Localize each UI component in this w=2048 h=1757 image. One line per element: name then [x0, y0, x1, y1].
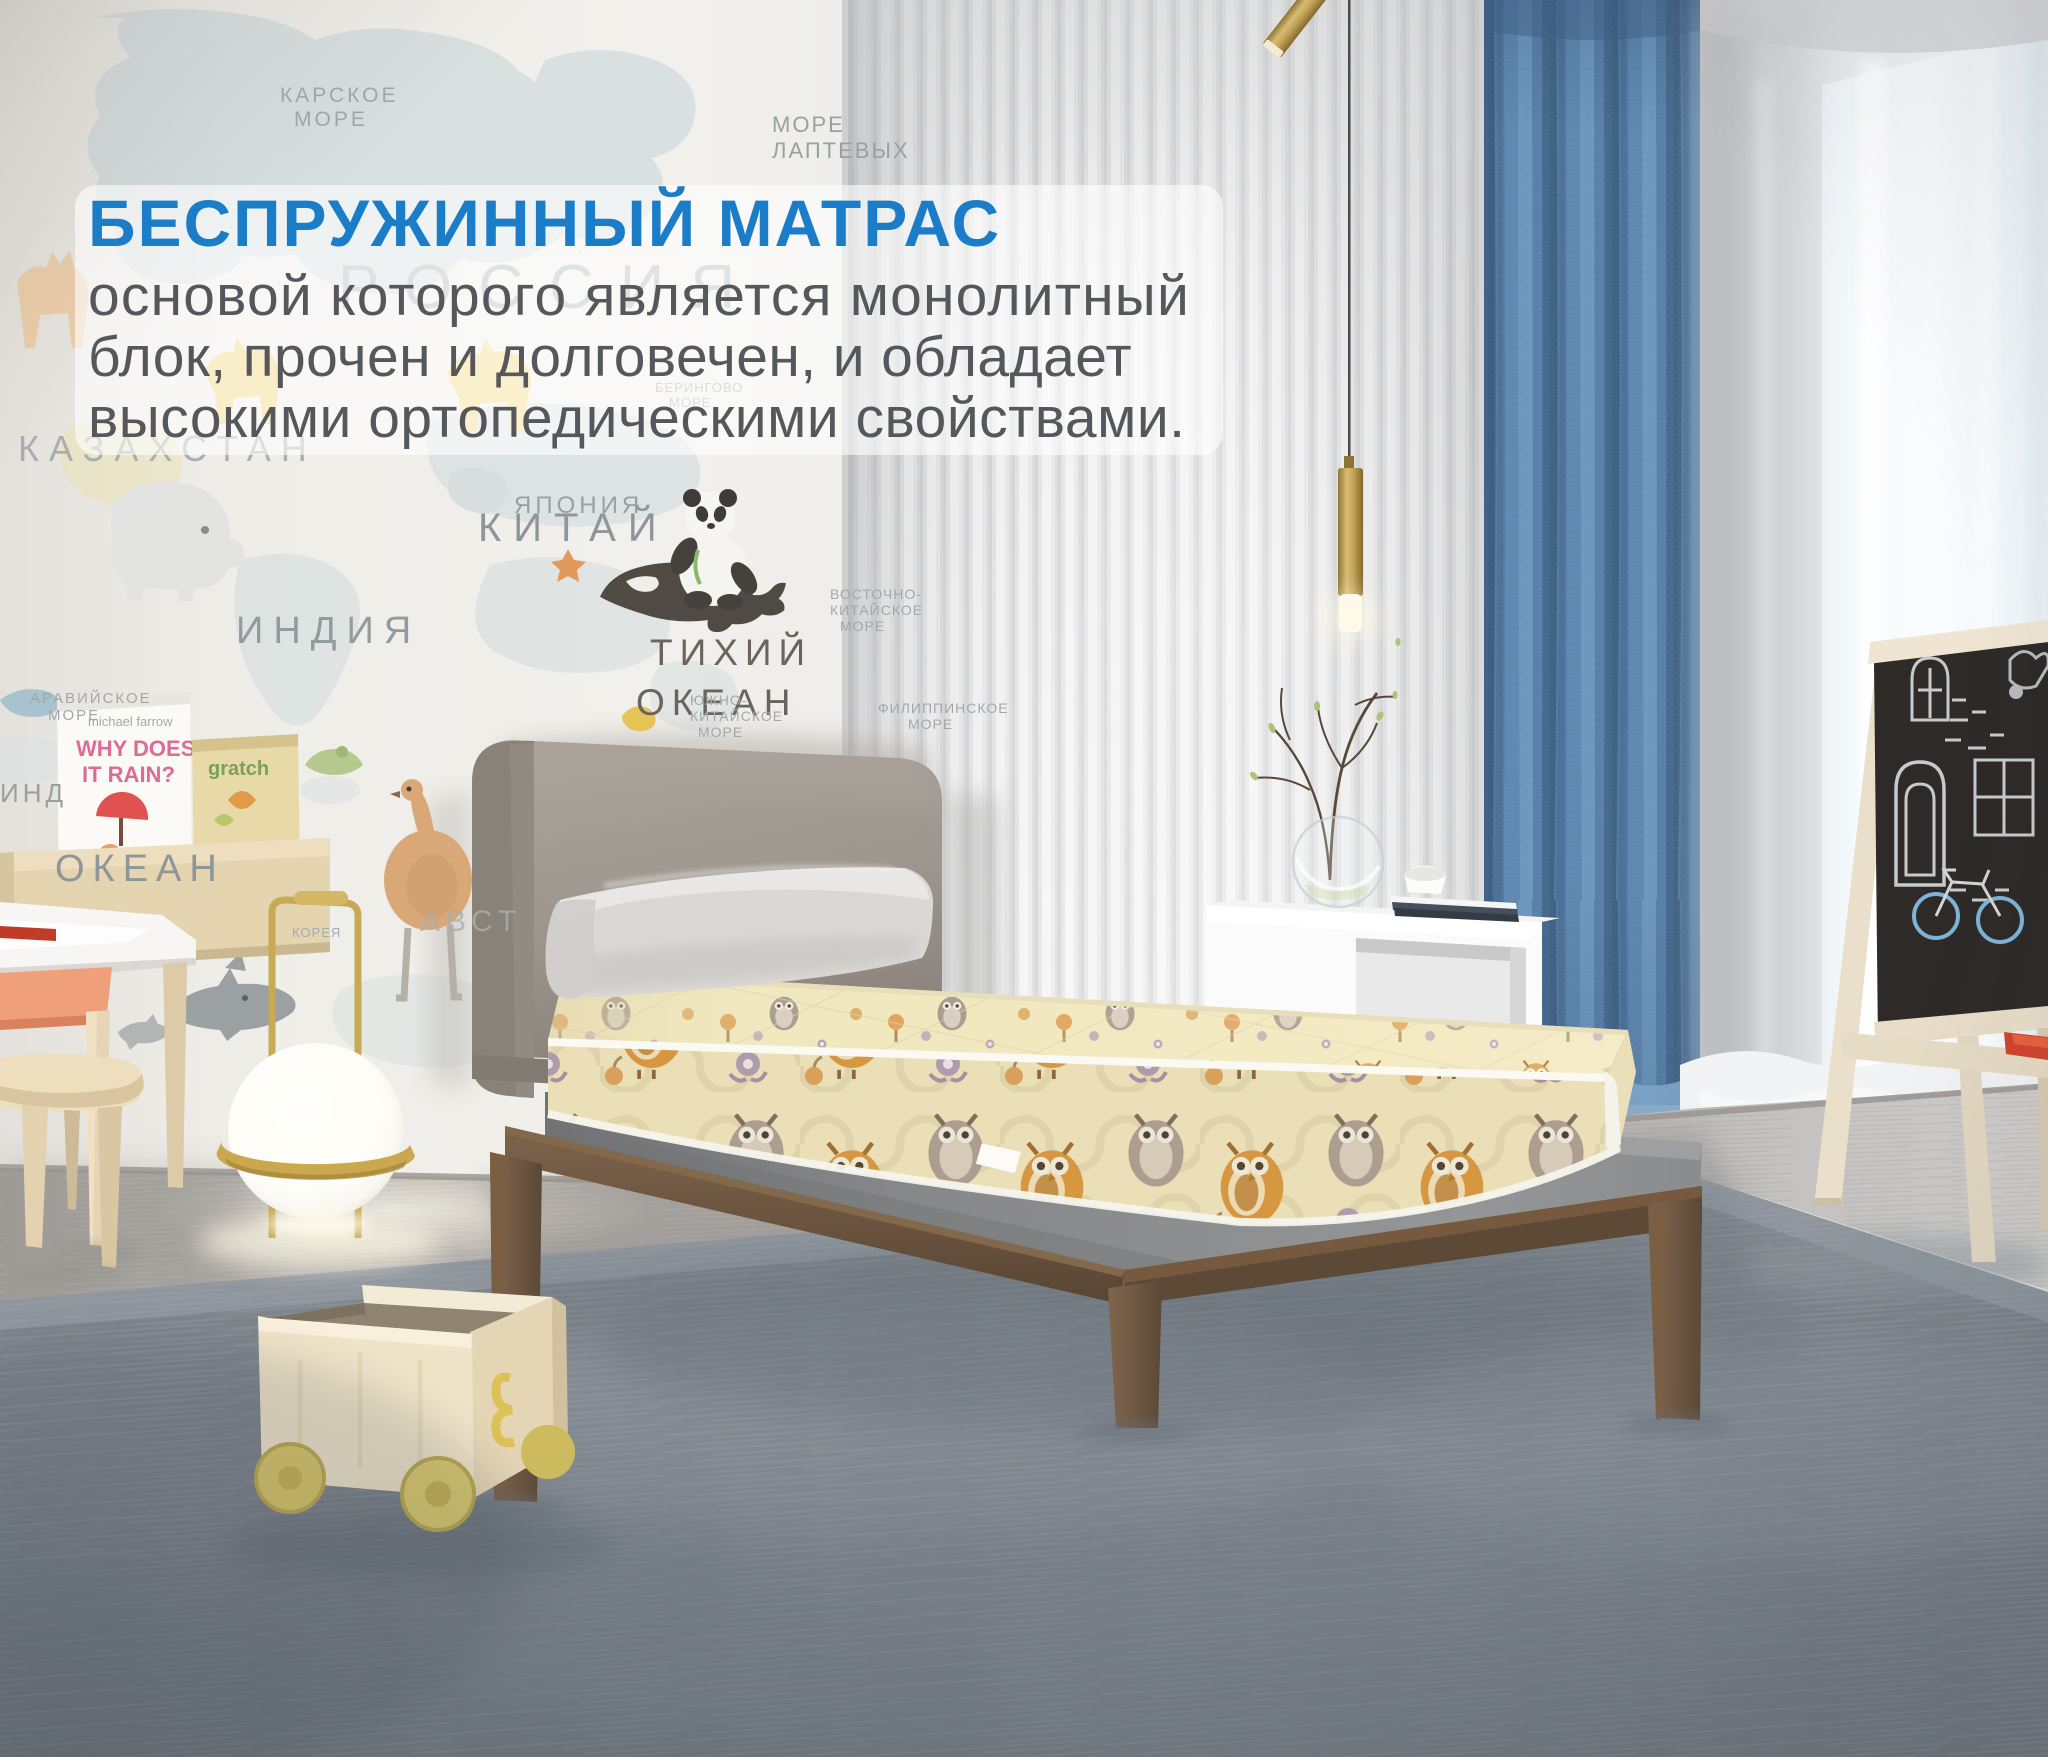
svg-text:IT RAIN?: IT RAIN?: [82, 762, 175, 787]
svg-text:WHY DOES: WHY DOES: [76, 736, 195, 761]
svg-text:gratch: gratch: [208, 758, 269, 780]
